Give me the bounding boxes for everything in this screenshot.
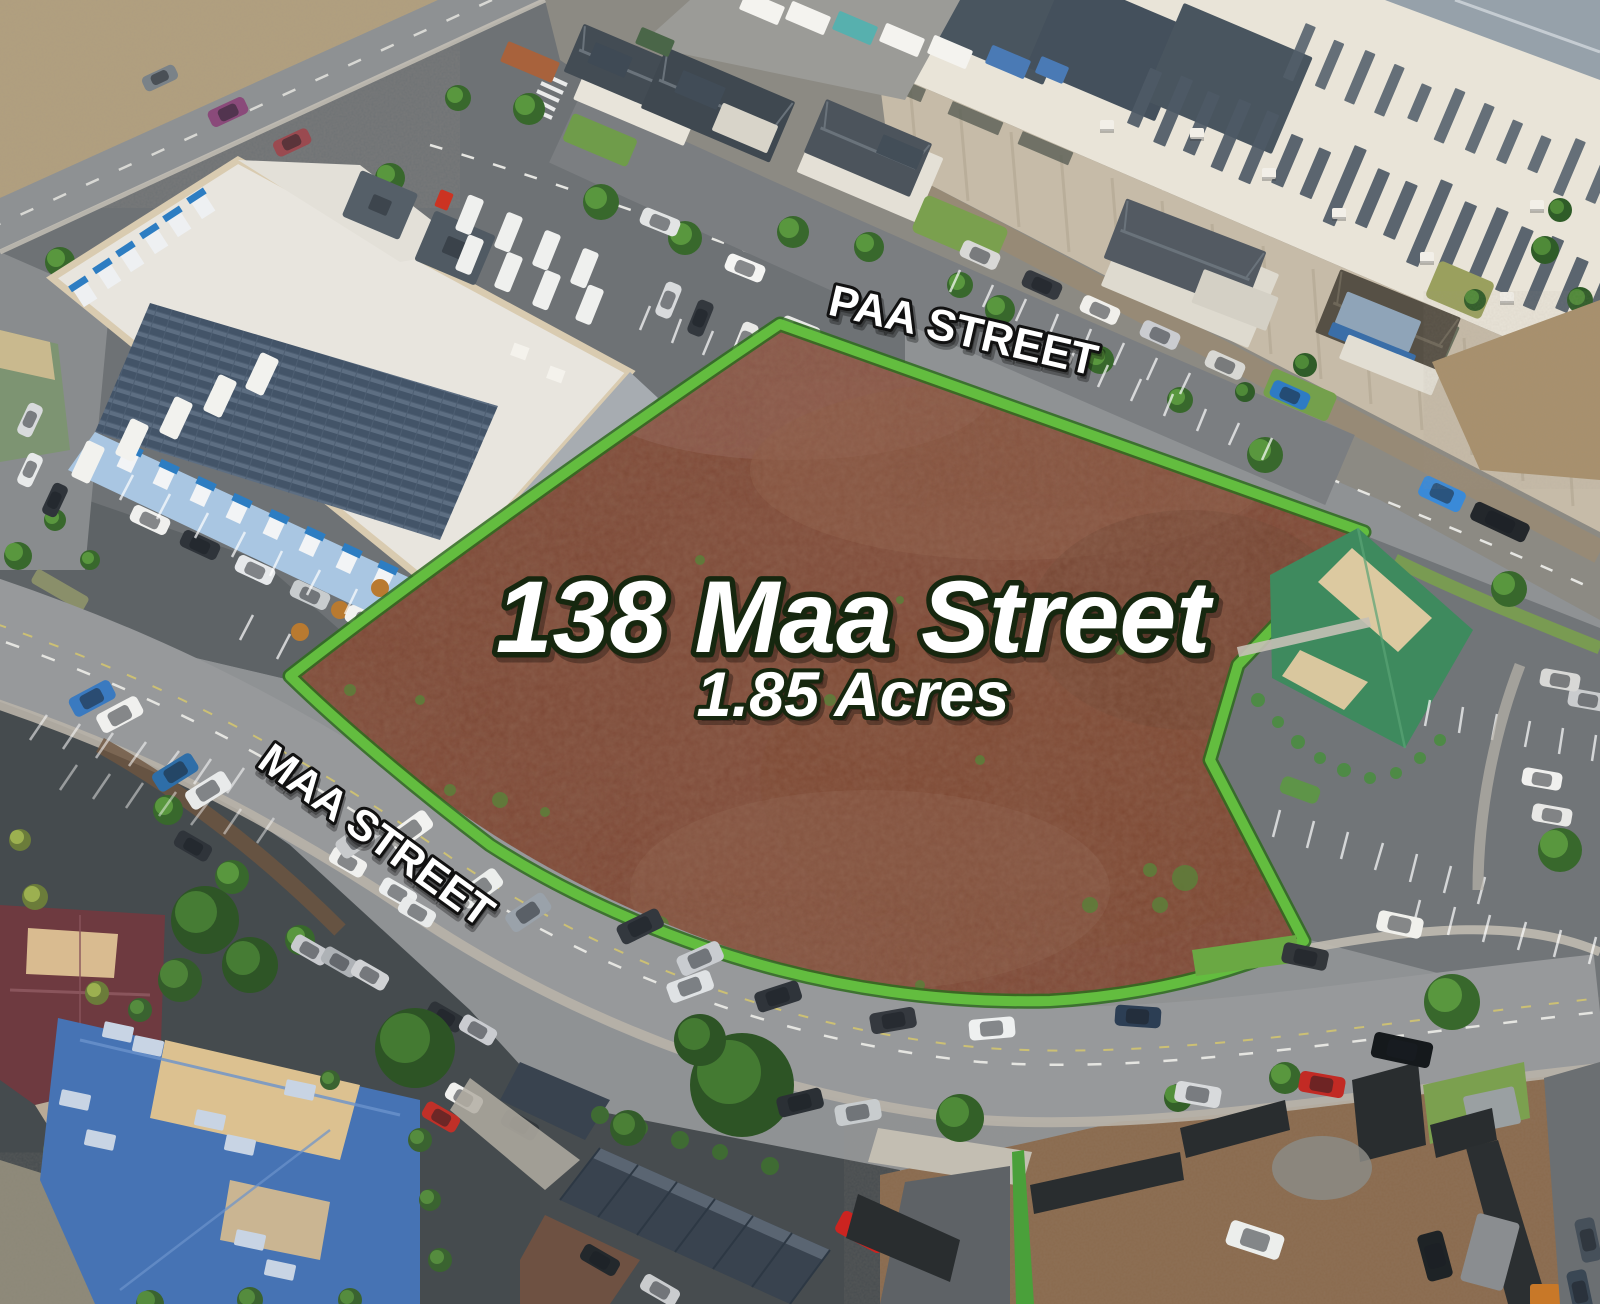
svg-text:138 Maa Street: 138 Maa Street (496, 560, 1214, 674)
svg-text:1.85 Acres: 1.85 Acres (697, 660, 1010, 730)
